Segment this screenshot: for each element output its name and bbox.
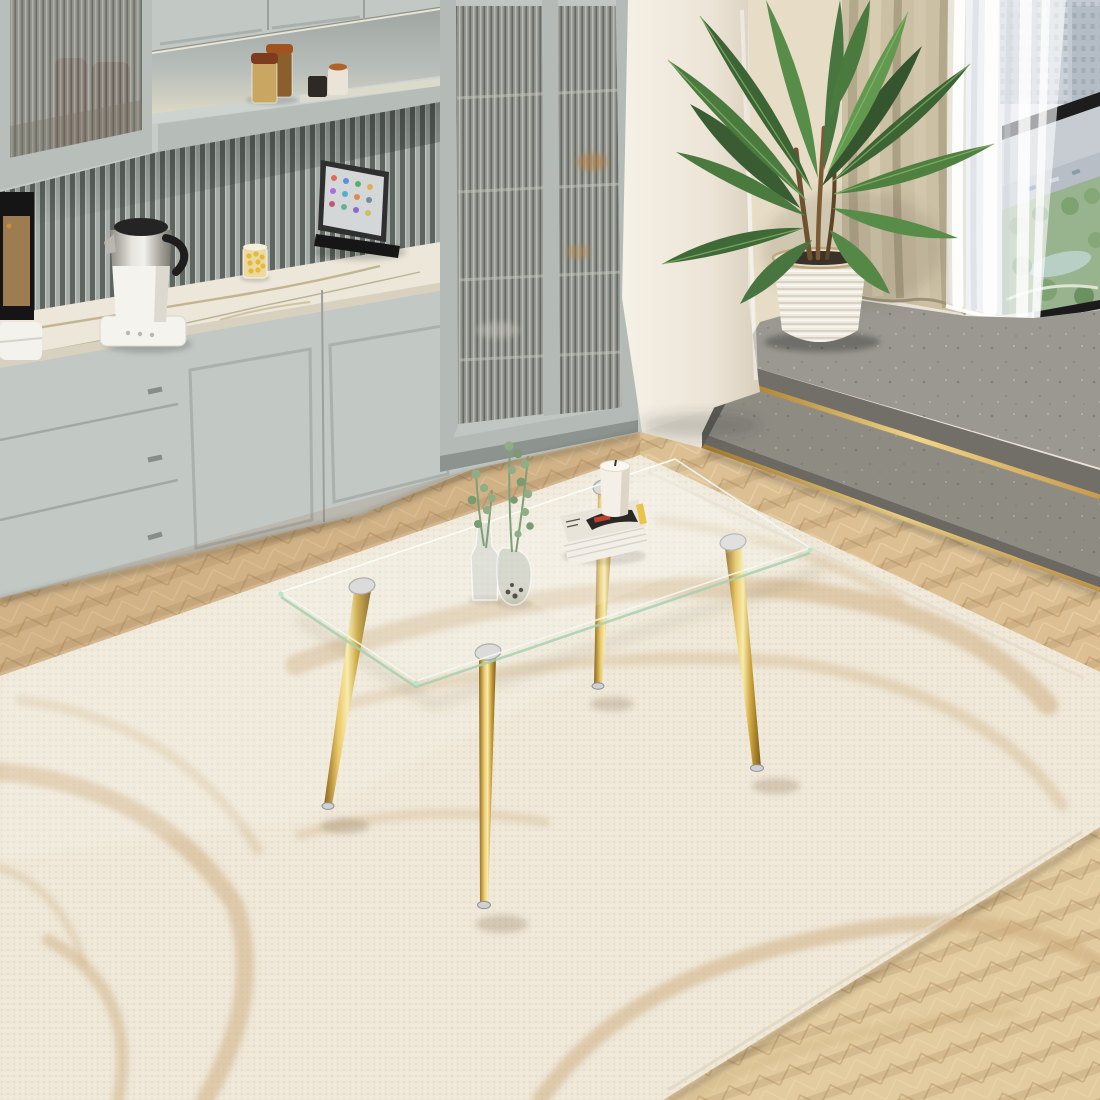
- glass-display-cabinet: [440, 0, 638, 472]
- door-stile: [142, 0, 152, 135]
- kettle-lid: [114, 218, 168, 236]
- small-dark-cup: [308, 76, 327, 97]
- spice-jar-tan: [252, 62, 277, 103]
- cork-lid: [329, 64, 347, 71]
- warm-glint: [576, 153, 608, 171]
- storage-jar: [240, 244, 270, 282]
- living-room-photo: [0, 0, 1100, 1100]
- glass-corner-glint: [413, 680, 418, 685]
- jar-rim: [243, 244, 267, 251]
- column-base-shadow: [640, 413, 760, 437]
- warm-glint: [565, 245, 591, 259]
- cork-lid: [266, 44, 293, 54]
- cork-lid: [251, 53, 278, 64]
- appliance-door: [3, 216, 30, 306]
- candle-wick: [615, 460, 616, 466]
- white-jar: [328, 68, 348, 95]
- glass-corner-glint: [808, 548, 813, 553]
- indicator-light: [7, 224, 12, 229]
- dish-stack-hint: [476, 322, 520, 338]
- door-stile: [0, 0, 10, 170]
- pillar-candle: [600, 460, 630, 517]
- fluted-door-left: [456, 6, 544, 424]
- glass-corner-glint: [278, 591, 283, 596]
